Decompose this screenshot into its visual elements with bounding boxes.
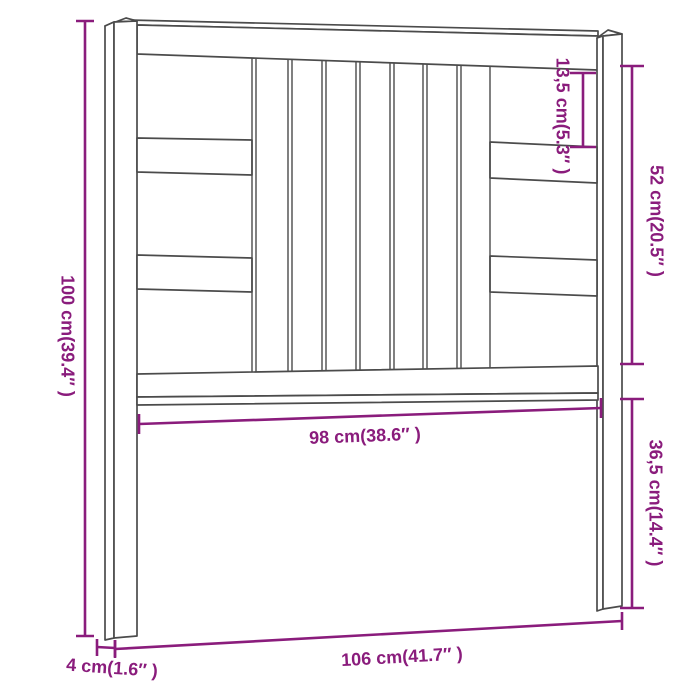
left-post-side-face <box>105 22 114 640</box>
left-post-front-face <box>114 21 137 638</box>
dim-leg-section: 36,5 cm(14.4″ ) <box>620 399 665 608</box>
right-post-front-face <box>603 34 622 609</box>
dim-top-opening-label: 13,5 cm(5.3″ ) <box>552 58 572 175</box>
dim-total-height-label: 100 cm(39.4″ ) <box>57 275 77 397</box>
dim-line <box>115 621 622 649</box>
dimension-annotations: 100 cm(39.4″ ) 13,5 cm(5.3″ ) 52 cm(20.5… <box>57 21 666 681</box>
dim-total-width-label: 106 cm(41.7″ ) <box>341 643 464 670</box>
dim-inner-width-label: 98 cm(38.6″ ) <box>309 424 421 448</box>
left-panel-rail-lower <box>137 255 252 292</box>
right-panel-rail-lower <box>490 256 597 296</box>
dim-upper-section: 52 cm(20.5″ ) <box>620 66 666 364</box>
right-post-side-face <box>597 36 603 611</box>
dim-post-depth: 4 cm(1.6″ ) <box>66 639 159 681</box>
left-panel-rail-upper <box>137 138 252 175</box>
headboard-drawing <box>105 18 622 640</box>
dim-total-height: 100 cm(39.4″ ) <box>57 21 94 636</box>
diagram-canvas: 100 cm(39.4″ ) 13,5 cm(5.3″ ) 52 cm(20.5… <box>0 0 700 700</box>
vertical-slats <box>252 58 490 372</box>
bottom-rail-front-face <box>137 366 598 397</box>
dim-leg-section-label: 36,5 cm(14.4″ ) <box>645 440 665 567</box>
headboard-dimension-diagram: 100 cm(39.4″ ) 13,5 cm(5.3″ ) 52 cm(20.5… <box>0 0 700 700</box>
dim-upper-section-label: 52 cm(20.5″ ) <box>646 165 666 277</box>
dim-post-depth-label: 4 cm(1.6″ ) <box>66 655 159 681</box>
dim-inner-width: 98 cm(38.6″ ) <box>139 398 601 448</box>
dim-total-width: 106 cm(41.7″ ) <box>115 612 622 670</box>
dim-line <box>97 647 115 648</box>
dim-line <box>139 408 601 424</box>
